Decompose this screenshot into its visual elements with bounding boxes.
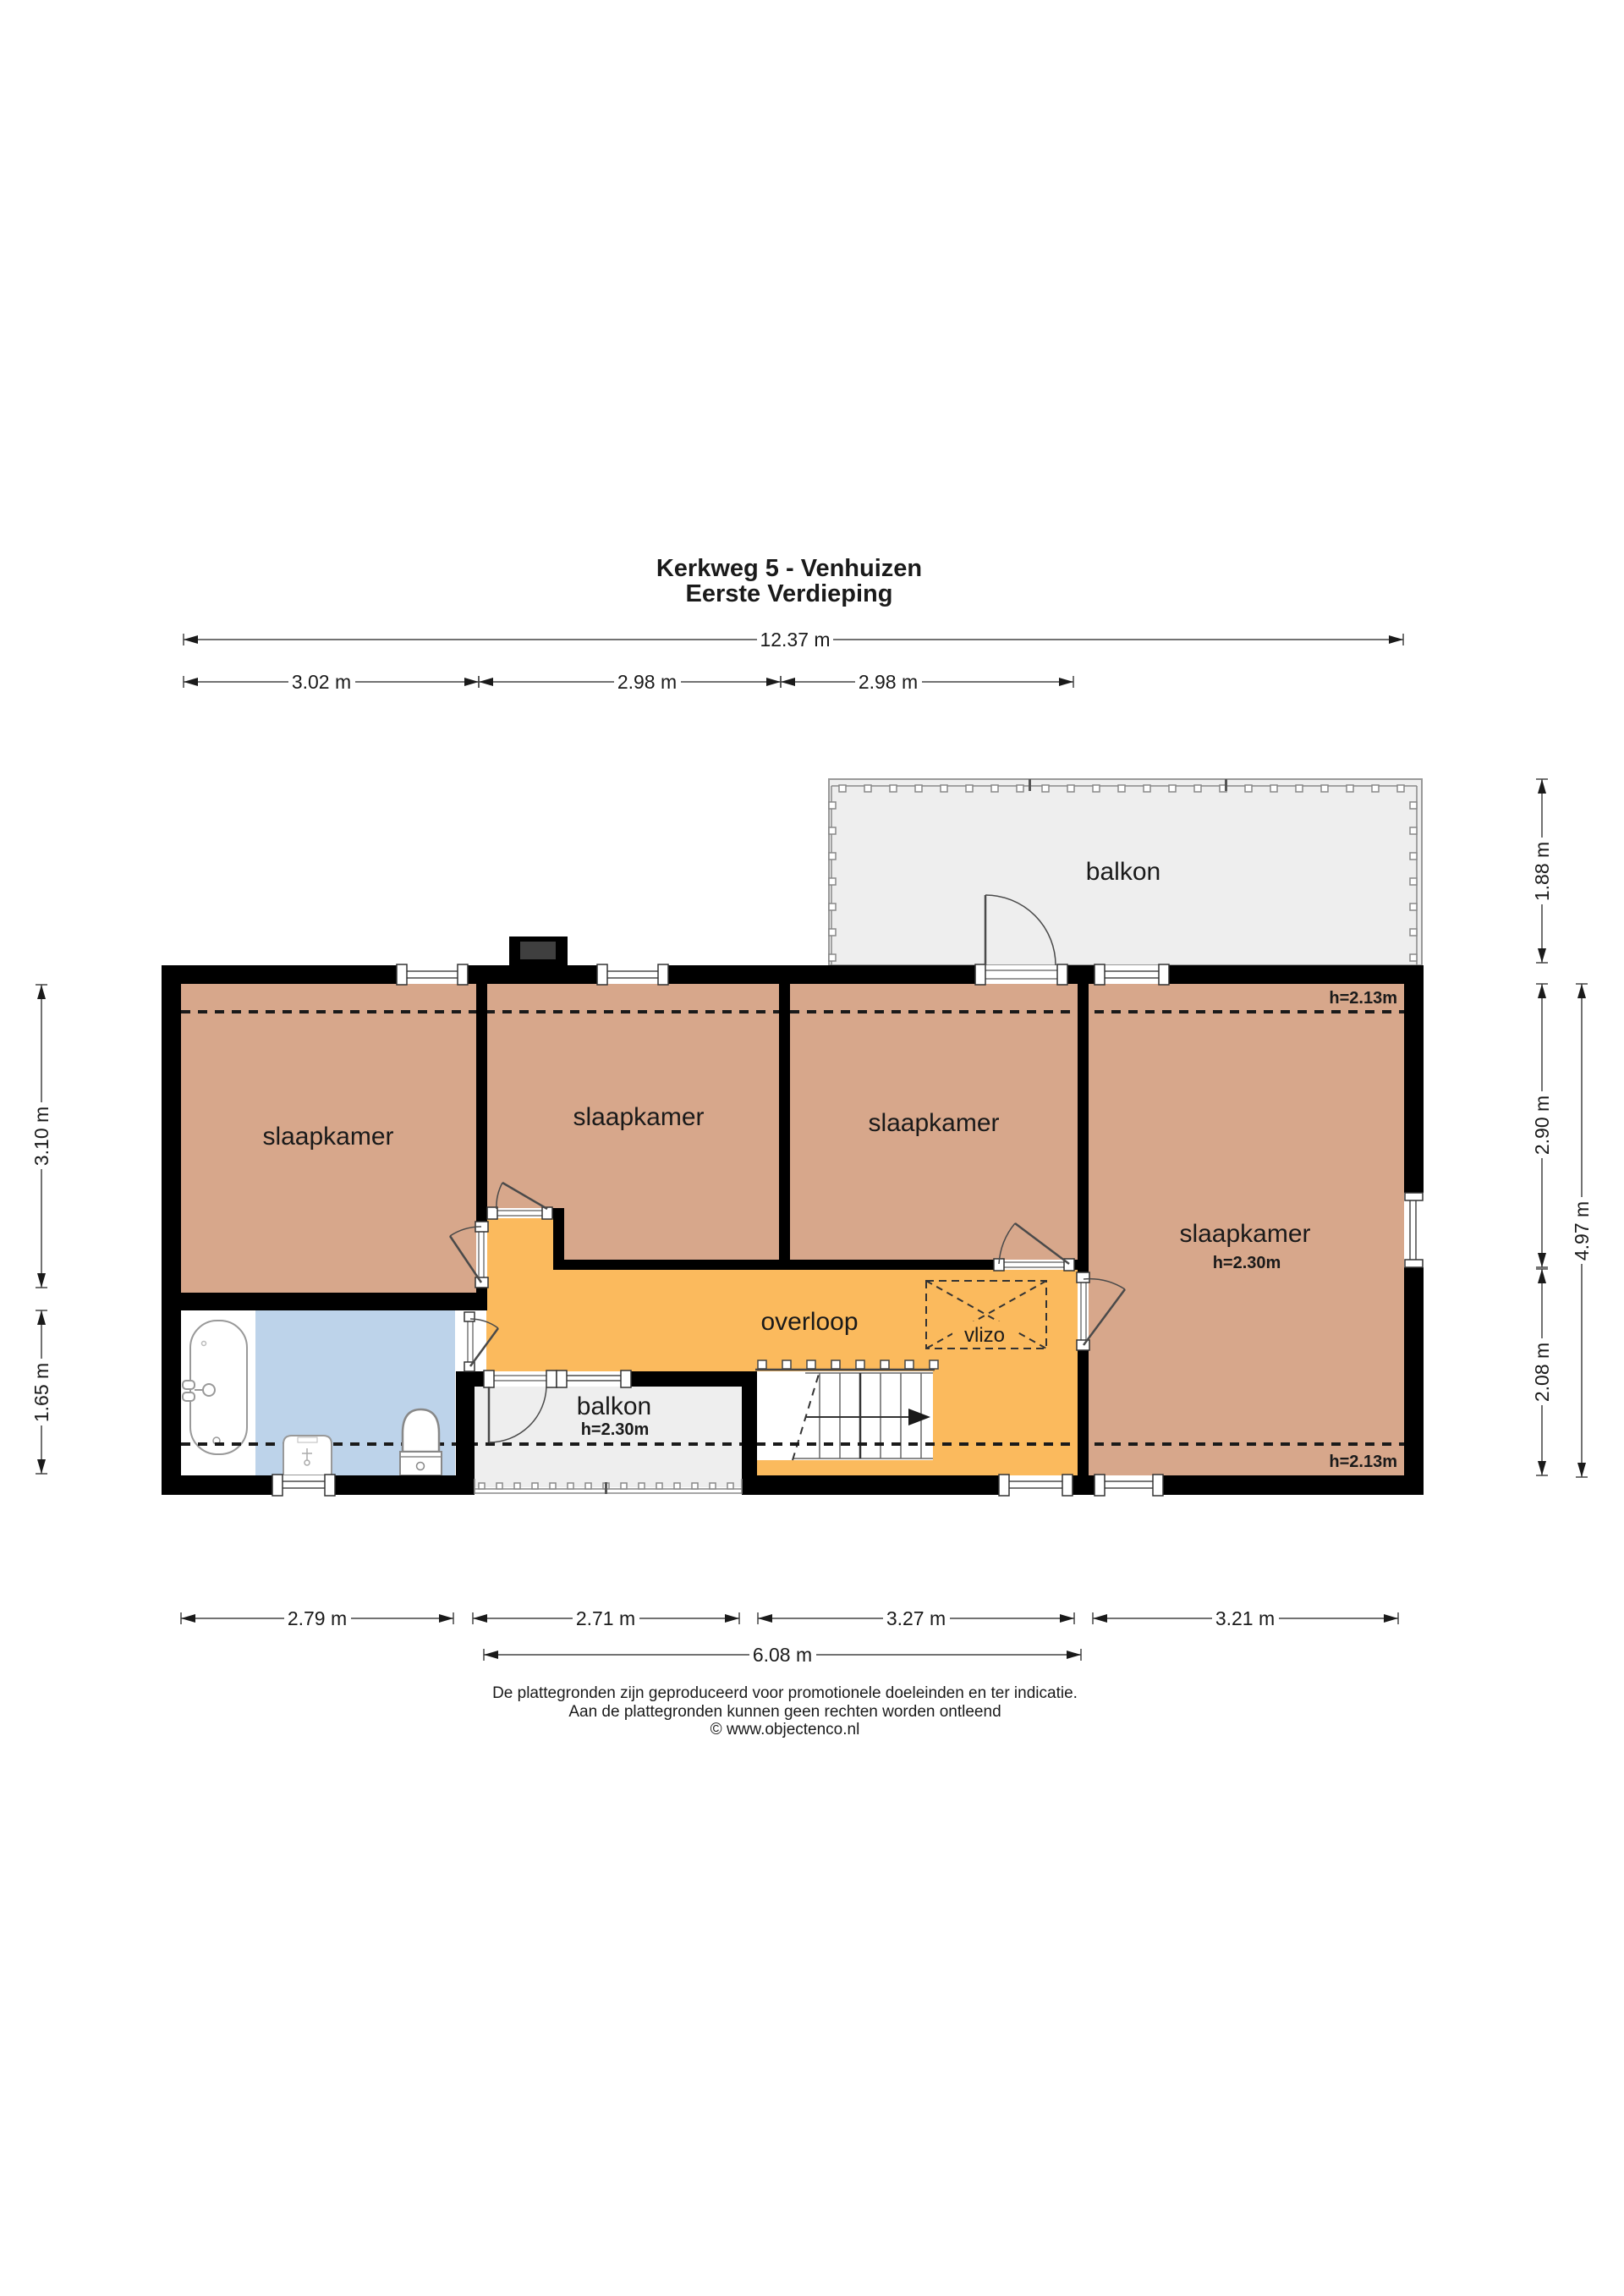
svg-text:3.21 m: 3.21 m — [1215, 1607, 1275, 1629]
svg-text:Eerste Verdieping: Eerste Verdieping — [686, 580, 893, 607]
svg-text:balkon: balkon — [1086, 858, 1160, 886]
svg-text:© www.objectenco.nl: © www.objectenco.nl — [710, 1721, 860, 1738]
svg-text:6.08 m: 6.08 m — [753, 1644, 812, 1666]
svg-text:Kerkweg 5 - Venhuizen: Kerkweg 5 - Venhuizen — [656, 555, 922, 582]
svg-text:Aan de plattegronden kunnen ge: Aan de plattegronden kunnen geen rechten… — [568, 1703, 1001, 1721]
svg-text:slaapkamer: slaapkamer — [573, 1103, 704, 1131]
svg-text:12.37 m: 12.37 m — [760, 629, 830, 651]
svg-text:h=2.13m: h=2.13m — [1329, 989, 1397, 1008]
svg-text:h=2.13m: h=2.13m — [1329, 1453, 1397, 1471]
svg-text:1.65 m: 1.65 m — [30, 1363, 52, 1422]
svg-text:1.88 m: 1.88 m — [1531, 842, 1553, 901]
svg-text:h=2.30m: h=2.30m — [1213, 1254, 1281, 1272]
svg-text:slaapkamer: slaapkamer — [868, 1109, 999, 1137]
svg-text:De plattegronden zijn geproduc: De plattegronden zijn geproduceerd voor … — [492, 1684, 1078, 1702]
svg-text:3.27 m: 3.27 m — [886, 1607, 946, 1629]
svg-text:3.02 m: 3.02 m — [292, 671, 351, 693]
svg-text:balkon: balkon — [577, 1392, 651, 1420]
svg-text:vlizo: vlizo — [964, 1324, 1005, 1347]
svg-text:3.10 m: 3.10 m — [30, 1107, 52, 1166]
svg-text:overloop: overloop — [760, 1308, 858, 1336]
svg-text:2.90 m: 2.90 m — [1531, 1096, 1553, 1155]
svg-text:slaapkamer: slaapkamer — [262, 1123, 393, 1151]
svg-text:2.71 m: 2.71 m — [576, 1607, 635, 1629]
svg-text:h=2.30m: h=2.30m — [581, 1420, 650, 1439]
svg-text:2.98 m: 2.98 m — [617, 671, 677, 693]
svg-text:4.97 m: 4.97 m — [1571, 1201, 1593, 1261]
svg-text:2.98 m: 2.98 m — [859, 671, 918, 693]
svg-text:2.08 m: 2.08 m — [1531, 1343, 1553, 1402]
svg-text:2.79 m: 2.79 m — [288, 1607, 347, 1629]
svg-text:slaapkamer: slaapkamer — [1179, 1220, 1310, 1248]
